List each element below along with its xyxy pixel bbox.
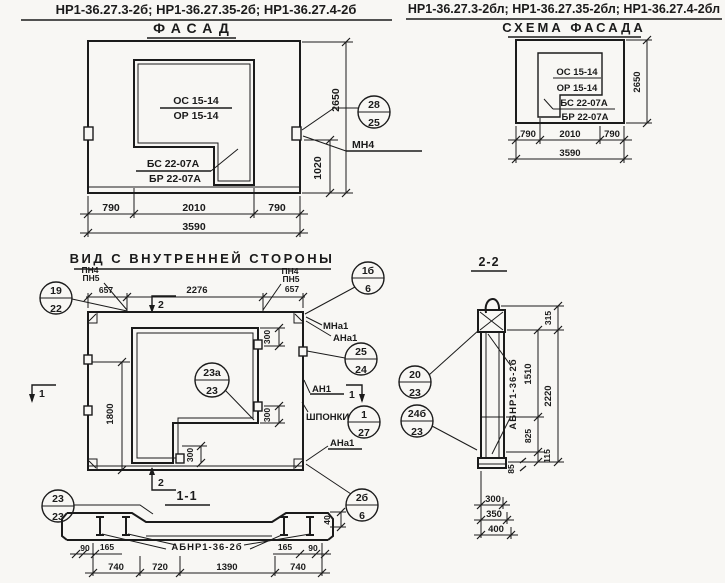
facade-window-mark-bottom: ОР 15-14: [174, 110, 219, 122]
dim-165-right: 165: [278, 542, 292, 552]
marker-arrow: [29, 394, 35, 403]
facade-title: ФАСАД: [153, 20, 235, 36]
marker-flag: [152, 296, 176, 311]
callout-top: 19: [50, 285, 62, 297]
embed-plate-right: [292, 127, 301, 140]
callout-bottom: 22: [50, 303, 62, 315]
callout-top: 23а: [203, 367, 221, 379]
dim-315: 315: [543, 311, 553, 325]
dim-400: 400: [488, 524, 504, 535]
callout-top: 1б: [362, 265, 375, 277]
dim-ticks: [520, 458, 526, 471]
inner-window-frame: [137, 333, 253, 458]
section-2-2: 2-2 АБНР1-36-2б 20 23 24б 23 31: [399, 255, 564, 539]
dim-790-left: 790: [520, 129, 536, 140]
dim-165-left: 165: [100, 542, 114, 552]
embed-plate-left: [84, 127, 93, 140]
facade-door-mark-top: БС 22-07А: [147, 158, 200, 170]
callout-28-25: 28 25: [358, 96, 390, 129]
callout-top: 23: [52, 493, 64, 505]
dim-740-right: 740: [290, 562, 306, 573]
leader-line: [306, 446, 328, 461]
dim-1390: 1390: [216, 562, 237, 573]
schema-door-mark-top: БС 22-07А: [560, 98, 608, 109]
leader-line: [211, 149, 238, 171]
dim-1800: 1800: [105, 403, 116, 424]
leader-line: [429, 330, 479, 375]
dim-3590: 3590: [559, 148, 580, 159]
marker-label: 2: [158, 477, 164, 489]
dim-1020: 1020: [312, 156, 324, 180]
label-shponki: ШПОНКИ: [306, 412, 349, 423]
callout-bottom: 25: [368, 117, 380, 129]
embed-plate: [254, 402, 262, 411]
facade-door-mark-bottom: БР 22-07А: [149, 173, 201, 185]
dim-657-left: 657: [99, 285, 113, 295]
embed-plate: [176, 454, 184, 463]
dim-300-mid: 300: [262, 408, 272, 422]
leader-line: [306, 464, 351, 494]
foot-block: [478, 458, 506, 468]
leader-line: [307, 351, 345, 358]
dim-790-right: 790: [268, 202, 286, 214]
leader-line: [544, 99, 553, 109]
marker-label: 2: [158, 299, 164, 311]
callout-24b-23: 24б 23: [401, 405, 433, 438]
dim-2010: 2010: [182, 202, 206, 214]
inner-title: ВИД С ВНУТРЕННЕЙ СТОРОНЫ: [70, 251, 335, 266]
callout-bottom: 24: [355, 364, 367, 376]
callout-top: 20: [409, 369, 421, 381]
callout-bottom: 6: [365, 283, 371, 295]
marker-arrow: [359, 394, 365, 403]
dim-740-left: 740: [108, 562, 124, 573]
leader-line: [432, 426, 477, 450]
embed-plate: [84, 355, 92, 364]
section-1-1: 1-1 АБНР1-36-2б 90 165 165 90 740 720 13…: [62, 489, 346, 577]
dim-657-right: 657: [285, 284, 299, 294]
dim-790-right: 790: [604, 129, 620, 140]
section-2-2-title: 2-2: [478, 255, 499, 269]
label-mna1: МНа1: [323, 321, 349, 332]
callout-23-23: 23 23: [42, 490, 74, 523]
facade-window-mark-top: ОС 15-14: [173, 95, 219, 107]
dim-2650: 2650: [632, 71, 643, 92]
title-left: НР1-36.27.3-2б; НР1-36.27.35-2б; НР1-36.…: [56, 2, 357, 17]
leader-line: [305, 287, 355, 314]
title-right: НР1-36.27.3-2бл; НР1-36.27.35-2бл; НР1-3…: [408, 2, 720, 16]
section-marker-1-right: 1: [346, 385, 365, 403]
blueprint-page: НР1-36.27.3-2б; НР1-36.27.35-2б; НР1-36.…: [0, 0, 725, 583]
embed-plate: [84, 406, 92, 415]
dim-300: 300: [485, 494, 501, 505]
label-ana1: АНа1: [333, 333, 358, 344]
drawing-canvas: НР1-36.27.3-2б; НР1-36.27.35-2б; НР1-36.…: [0, 0, 725, 583]
leader-line: [304, 380, 310, 393]
dim-40: 40: [322, 515, 332, 525]
callout-top: 24б: [408, 408, 427, 420]
marker-label: 1: [39, 388, 45, 400]
schema-view: СХЕМА ФАСАДА ОС 15-14 ОР 15-14 БС 22-07А…: [502, 20, 652, 163]
facade-view: ФАСАД ОС 15-14 ОР 15-14 БС 22-07А БР 22-…: [80, 20, 422, 237]
inner-window-opening: [132, 328, 258, 463]
dim-790-left: 790: [102, 202, 120, 214]
dim-720: 720: [152, 562, 168, 573]
embed-plate: [299, 347, 307, 356]
schema-window-mark-top: ОС 15-14: [556, 67, 598, 78]
callout-top: 25: [355, 346, 367, 358]
callout-bottom: 27: [358, 427, 370, 439]
leader-line: [306, 317, 322, 325]
dim-2220: 2220: [543, 385, 554, 406]
callout-bottom: 23: [206, 385, 218, 397]
dim-115: 115: [542, 449, 552, 463]
callout-25-24: 25 24: [345, 343, 377, 376]
dim-85: 85: [506, 464, 516, 474]
dim-90-left: 90: [80, 543, 90, 553]
schema-title: СХЕМА ФАСАДА: [502, 20, 646, 35]
dim-825: 825: [523, 429, 533, 443]
schema-window-mark-bottom: ОР 15-14: [557, 83, 598, 94]
label-pn5-left: ПН5: [83, 273, 100, 283]
dim-300-bottom: 300: [185, 448, 195, 462]
callout-bottom: 23: [411, 426, 423, 438]
section-marker-1-left: 1: [29, 385, 56, 403]
callout-2b-6: 2б 6: [346, 489, 378, 522]
marker-flag: [152, 468, 176, 490]
dim-3590: 3590: [182, 221, 206, 233]
embed-plate: [254, 340, 262, 349]
label-pn5-right: ПН5: [283, 274, 300, 284]
callout-23a-23: 23а 23: [195, 363, 229, 397]
callout-19-22: 19 22: [40, 282, 72, 315]
dim-2010: 2010: [559, 129, 580, 140]
callout-1b-6: 1б 6: [352, 262, 384, 295]
callout-top: 28: [368, 99, 380, 111]
i-beam-embeds: [96, 517, 314, 535]
label-ana1-bottom: АНа1: [330, 438, 355, 449]
section-1-1-title: 1-1: [176, 489, 197, 503]
callout-20-23: 20 23: [399, 366, 431, 399]
callout-top: 2б: [356, 492, 369, 504]
head-block-detail: [480, 312, 503, 330]
dim-90-right: 90: [308, 543, 318, 553]
leader-line: [225, 390, 254, 420]
leader-line: [303, 136, 346, 151]
leader-line: [302, 108, 358, 130]
inner-view: ВИД С ВНУТРЕННЕЙ СТОРОНЫ 2276 657 ПН4 ПН…: [29, 251, 384, 523]
callout-bottom: 6: [359, 510, 365, 522]
callout-top: 1: [361, 409, 367, 421]
callout-1-27: 1 27: [348, 406, 380, 439]
callout-bottom: 23: [409, 387, 421, 399]
dim-1510: 1510: [523, 363, 534, 384]
schema-door-mark-bottom: БР 22-07А: [562, 112, 609, 123]
section-marker-2-top: 2: [149, 296, 176, 313]
header-right: НР1-36.27.3-2бл; НР1-36.27.35-2бл; НР1-3…: [406, 2, 722, 19]
section-1-1-label: АБНР1-36-2б: [171, 542, 242, 553]
dim-350: 350: [486, 509, 502, 520]
label-mn4: МН4: [352, 139, 374, 151]
dim-2276: 2276: [186, 285, 207, 296]
marker-label: 1: [349, 389, 355, 401]
dim-300-top: 300: [262, 330, 272, 344]
header-left: НР1-36.27.3-2б; НР1-36.27.35-2б; НР1-36.…: [21, 2, 392, 20]
